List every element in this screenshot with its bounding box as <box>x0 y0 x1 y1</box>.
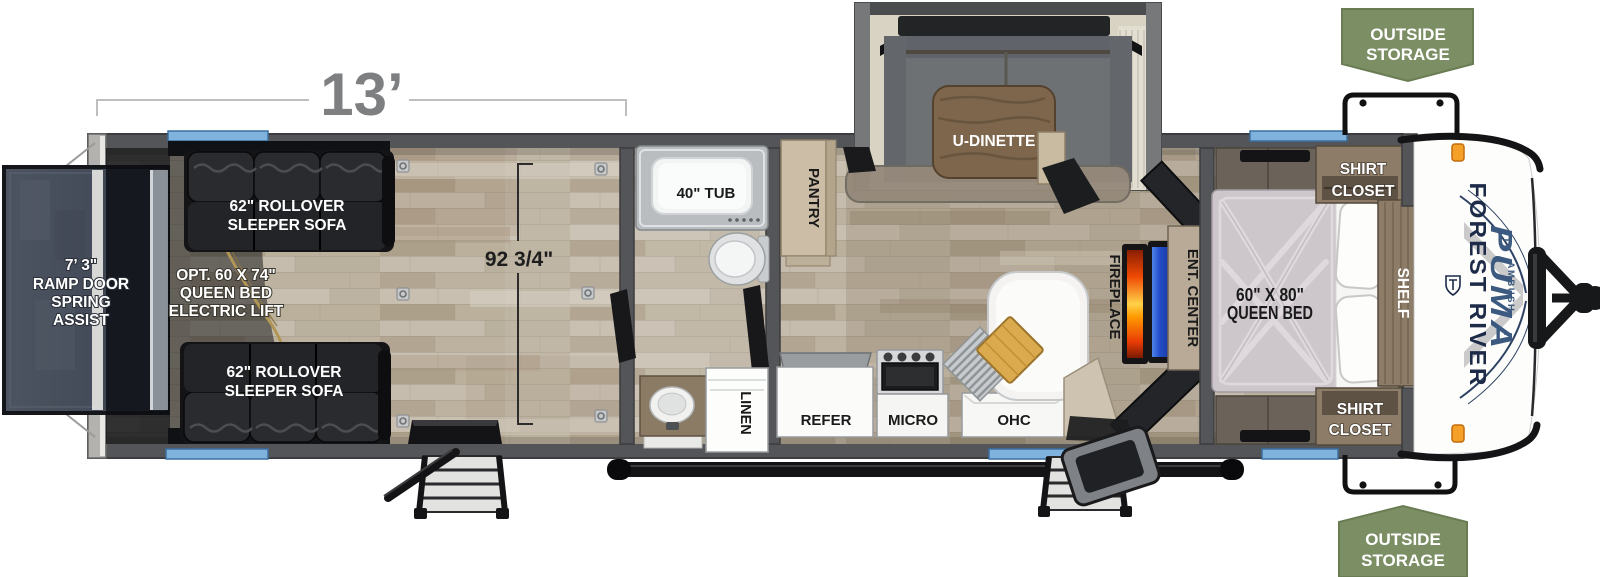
svg-text:60" X 80": 60" X 80" <box>1236 285 1304 305</box>
svg-text:92 3/4": 92 3/4" <box>485 248 553 271</box>
svg-text:OHC: OHC <box>997 412 1031 429</box>
svg-text:7’ 3": 7’ 3" <box>65 257 97 274</box>
svg-text:SHIRT: SHIRT <box>1337 401 1384 418</box>
svg-text:ENT. CENTER: ENT. CENTER <box>1184 249 1201 348</box>
svg-text:ELECTRIC LIFT: ELECTRIC LIFT <box>169 303 284 320</box>
svg-text:SLEEPER SOFA: SLEEPER SOFA <box>228 217 347 234</box>
svg-text:STORAGE: STORAGE <box>1361 551 1445 570</box>
svg-text:OUTSIDE: OUTSIDE <box>1370 25 1446 44</box>
svg-text:STORAGE: STORAGE <box>1366 45 1450 64</box>
svg-text:62" ROLLOVER: 62" ROLLOVER <box>226 364 341 381</box>
svg-text:OUTSIDE: OUTSIDE <box>1365 530 1441 549</box>
svg-text:SHELF: SHELF <box>1394 268 1411 319</box>
svg-text:QUEEN BED: QUEEN BED <box>180 285 272 302</box>
svg-text:OPT. 60 X 74": OPT. 60 X 74" <box>176 267 276 284</box>
svg-text:CLOSET: CLOSET <box>1332 183 1395 200</box>
svg-text:13’: 13’ <box>320 61 403 128</box>
svg-text:PANTRY: PANTRY <box>805 168 822 228</box>
svg-text:SHIRT: SHIRT <box>1340 161 1387 178</box>
svg-text:QUEEN BED: QUEEN BED <box>1227 303 1313 323</box>
svg-text:CLOSET: CLOSET <box>1329 422 1392 439</box>
svg-text:RAMP DOOR: RAMP DOOR <box>33 276 129 293</box>
svg-text:FIREPLACE: FIREPLACE <box>1106 254 1123 339</box>
svg-text:62" ROLLOVER: 62" ROLLOVER <box>229 198 344 215</box>
svg-text:SPRING: SPRING <box>51 294 110 311</box>
svg-text:REFER: REFER <box>801 412 852 429</box>
svg-text:AMBUSH: AMBUSH <box>1505 262 1516 313</box>
svg-text:40" TUB: 40" TUB <box>677 185 736 202</box>
svg-text:LINEN: LINEN <box>737 391 753 435</box>
svg-text:U-DINETTE: U-DINETTE <box>953 133 1036 150</box>
svg-text:ASSIST: ASSIST <box>53 312 110 329</box>
svg-text:SLEEPER SOFA: SLEEPER SOFA <box>225 383 344 400</box>
svg-text:MICRO: MICRO <box>888 412 938 429</box>
